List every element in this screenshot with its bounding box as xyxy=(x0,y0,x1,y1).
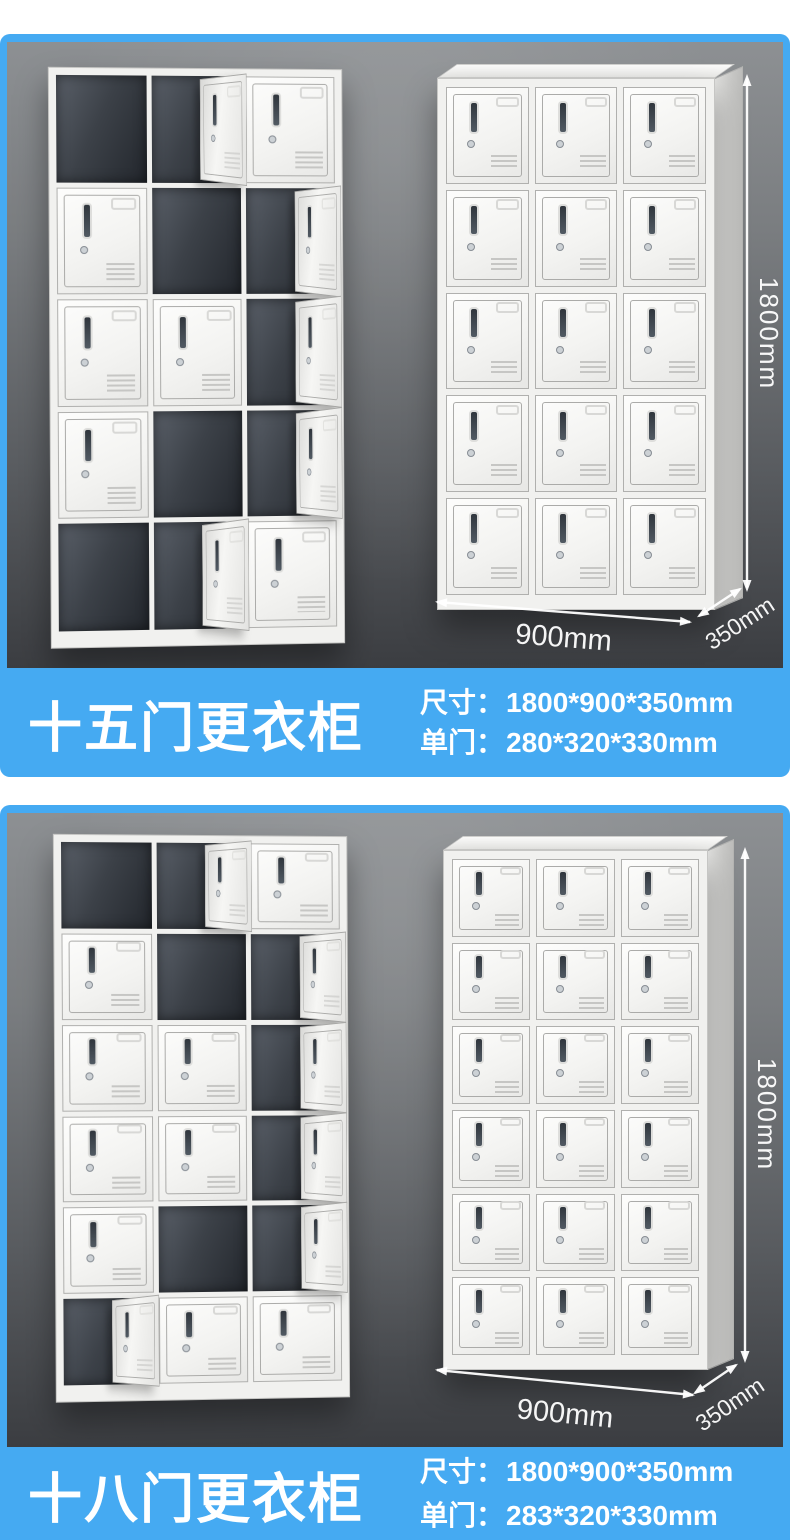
locker-door-cell xyxy=(621,1194,699,1272)
door-vents xyxy=(227,597,242,615)
door-card-slot xyxy=(327,1121,340,1132)
locker-door-cell xyxy=(535,190,618,287)
door-lock xyxy=(641,1153,649,1161)
door-card-slot xyxy=(302,531,326,543)
door-handle xyxy=(560,412,566,440)
product-banner-15: 十五门更衣柜 尺寸：1800*900*350mm 单门：280*320*330m… xyxy=(0,668,790,777)
door-card-slot xyxy=(584,1201,605,1209)
door-handle xyxy=(560,309,566,337)
locker-door-open xyxy=(295,296,342,408)
locker-door-cell xyxy=(621,1110,699,1188)
locker-15-front-view xyxy=(437,78,715,610)
locker-door xyxy=(157,1025,247,1111)
door-card-slot xyxy=(674,302,697,312)
door-lock xyxy=(180,1072,188,1080)
spec-size-value: 1800*900*350mm xyxy=(506,687,733,718)
locker-door-open xyxy=(205,840,252,932)
locker-door xyxy=(452,1026,530,1104)
door-card-slot xyxy=(584,1285,605,1293)
door-handle xyxy=(185,1039,191,1064)
door-vents xyxy=(495,1332,519,1344)
door-lock xyxy=(556,449,564,457)
door-handle xyxy=(645,1290,651,1313)
locker-door-cell xyxy=(623,395,706,492)
locker-open-compartment xyxy=(56,75,147,183)
door-handle xyxy=(85,429,91,461)
spec-door-value: 283*320*330mm xyxy=(506,1500,718,1531)
locker-door xyxy=(452,1194,530,1272)
door-card-slot xyxy=(585,405,608,415)
locker-door-cell xyxy=(157,1025,247,1111)
locker-18-front-view xyxy=(443,850,708,1370)
door-vents xyxy=(669,361,695,376)
door-lock xyxy=(176,358,184,366)
locker-door xyxy=(446,87,529,184)
door-vents xyxy=(669,464,695,479)
locker-door xyxy=(452,1110,530,1188)
door-vents xyxy=(579,914,603,926)
door-vents xyxy=(669,258,695,273)
locker-door xyxy=(158,1115,248,1201)
door-handle xyxy=(471,514,477,542)
locker-open-compartment xyxy=(151,76,241,183)
locker-door xyxy=(446,190,529,287)
locker-open-compartment xyxy=(61,842,152,929)
locker-door-cell xyxy=(62,1116,153,1203)
locker-18-front-grid xyxy=(443,850,708,1370)
door-lock xyxy=(306,357,310,364)
door-vents xyxy=(207,1085,235,1099)
height-dimension-label: 1800mm xyxy=(753,277,783,390)
locker-door xyxy=(446,395,529,492)
locker-door-cell xyxy=(251,843,340,929)
door-handle xyxy=(90,1131,96,1156)
locker-door-open xyxy=(300,1112,347,1203)
locker-door xyxy=(535,498,618,595)
door-card-slot xyxy=(227,85,241,98)
door-handle xyxy=(649,206,655,234)
door-lock xyxy=(81,358,89,366)
locker-door xyxy=(251,843,340,929)
locker-door-cell xyxy=(623,293,706,390)
locker-door-open xyxy=(299,931,346,1022)
door-handle xyxy=(649,103,655,131)
door-vents xyxy=(579,1332,603,1344)
locker-door-open xyxy=(295,407,342,519)
door-vents xyxy=(319,374,334,392)
door-card-slot xyxy=(500,1118,521,1126)
door-vents xyxy=(669,155,695,170)
locker-door xyxy=(623,190,706,287)
locker-door xyxy=(452,1277,530,1355)
door-handle xyxy=(560,103,566,131)
door-card-slot xyxy=(668,1118,689,1126)
spec-size-line: 尺寸：1800*900*350mm xyxy=(420,1450,733,1494)
door-vents xyxy=(113,1268,141,1282)
door-handle xyxy=(126,1313,129,1338)
locker-door xyxy=(452,943,530,1021)
locker-open-compartment xyxy=(63,1298,154,1386)
locker-door xyxy=(536,1026,614,1104)
door-handle xyxy=(85,317,91,349)
door-handle xyxy=(89,948,95,973)
door-lock xyxy=(641,1236,649,1244)
locker-door xyxy=(621,943,699,1021)
locker-door-cell xyxy=(536,943,614,1021)
door-card-slot xyxy=(326,941,339,951)
locker-door-cell xyxy=(621,859,699,937)
door-vents xyxy=(664,997,688,1009)
door-lock xyxy=(467,449,475,457)
locker-door-cell xyxy=(152,299,242,406)
door-card-slot xyxy=(207,309,231,321)
door-lock xyxy=(305,246,309,253)
locker-door-cell xyxy=(253,1295,342,1382)
door-handle xyxy=(471,412,477,440)
door-lock xyxy=(472,1069,480,1077)
door-vents xyxy=(325,1175,340,1190)
locker-door xyxy=(152,299,242,406)
spec-size-label: 尺寸： xyxy=(420,687,504,718)
locker-door-cell xyxy=(452,1277,530,1355)
locker-open-compartment xyxy=(246,188,335,294)
locker-door xyxy=(536,943,614,1021)
door-card-slot xyxy=(674,405,697,415)
door-card-slot xyxy=(584,1118,605,1126)
locker-door-cell xyxy=(623,87,706,184)
door-card-slot xyxy=(584,950,605,958)
locker-door-cell xyxy=(536,1194,614,1272)
door-card-slot xyxy=(140,1304,154,1315)
locker-door xyxy=(61,933,152,1019)
door-handle xyxy=(560,872,566,895)
locker-door-open xyxy=(301,1202,348,1293)
door-vents xyxy=(108,487,136,504)
door-vents xyxy=(325,1266,340,1281)
door-lock xyxy=(310,981,314,988)
locker-open-compartment xyxy=(157,934,247,1020)
locker-door-open xyxy=(200,73,248,185)
door-handle xyxy=(308,317,311,348)
locker-door-cell xyxy=(535,87,618,184)
locker-top-face xyxy=(437,64,735,78)
spec-size-line: 尺寸：1800*900*350mm xyxy=(420,683,733,723)
locker-door-cell xyxy=(621,1277,699,1355)
locker-door xyxy=(621,1026,699,1104)
locker-door-cell xyxy=(446,190,529,287)
locker-door-cell xyxy=(246,76,335,183)
door-handle xyxy=(313,1129,316,1154)
locker-top-face xyxy=(443,836,728,850)
locker-door-cell xyxy=(61,933,152,1019)
door-vents xyxy=(495,1081,519,1093)
door-card-slot xyxy=(500,1201,521,1209)
width-dimension-label: 900mm xyxy=(434,612,693,665)
locker-door xyxy=(535,293,618,390)
locker-door-cell xyxy=(536,1277,614,1355)
door-lock xyxy=(181,1163,189,1171)
locker-door-cell xyxy=(536,859,614,937)
door-lock xyxy=(641,985,649,993)
door-vents xyxy=(580,155,606,170)
door-vents xyxy=(302,1356,330,1370)
locker-door xyxy=(63,1207,154,1294)
door-vents xyxy=(664,1165,688,1177)
locker-door-cell xyxy=(158,1115,248,1201)
locker-door xyxy=(621,1277,699,1355)
locker-door xyxy=(621,1110,699,1188)
door-handle xyxy=(560,956,566,979)
door-lock xyxy=(85,981,93,989)
door-vents xyxy=(297,596,325,613)
door-card-slot xyxy=(584,1034,605,1042)
door-vents xyxy=(491,155,517,170)
spec-door-line: 单门：280*320*330mm xyxy=(420,723,733,763)
door-vents xyxy=(208,1357,236,1371)
door-card-slot xyxy=(327,1031,340,1042)
door-card-slot xyxy=(500,950,521,958)
door-card-slot xyxy=(213,1305,237,1315)
door-vents xyxy=(112,1085,140,1099)
door-lock xyxy=(472,1153,480,1161)
door-lock xyxy=(641,1320,649,1328)
door-handle xyxy=(645,1039,651,1062)
door-card-slot xyxy=(674,97,697,107)
locker-door xyxy=(536,859,614,937)
locker-door xyxy=(159,1297,249,1384)
door-handle xyxy=(649,309,655,337)
door-handle xyxy=(186,1312,192,1337)
spec-door-label: 单门： xyxy=(420,1500,504,1531)
locker-door xyxy=(623,87,706,184)
locker-door xyxy=(621,1194,699,1272)
door-handle xyxy=(312,949,315,974)
door-vents xyxy=(580,567,606,582)
locker-door xyxy=(452,859,530,937)
locker-door xyxy=(446,498,529,595)
door-vents xyxy=(664,914,688,926)
locker-door xyxy=(623,395,706,492)
door-lock xyxy=(213,580,217,587)
locker-door-cell xyxy=(623,498,706,595)
height-dimension-label: 1800mm xyxy=(751,1058,782,1171)
locker-door xyxy=(246,76,335,183)
locker-door-cell xyxy=(535,395,618,492)
door-vents xyxy=(579,997,603,1009)
locker-door-open xyxy=(202,519,250,631)
door-vents xyxy=(202,374,230,391)
door-handle xyxy=(476,1290,482,1313)
product-title: 十八门更衣柜 xyxy=(28,1454,364,1533)
door-handle xyxy=(84,205,90,237)
door-card-slot xyxy=(585,302,608,312)
door-vents xyxy=(491,464,517,479)
spec-door-line: 单门：283*320*330mm xyxy=(420,1494,733,1538)
door-vents xyxy=(324,1085,339,1100)
door-vents xyxy=(107,375,135,392)
locker-door-cell xyxy=(248,521,337,628)
locker-door-cell xyxy=(57,187,148,294)
door-vents xyxy=(491,361,517,376)
locker-15-front-grid xyxy=(437,78,715,610)
door-vents xyxy=(319,263,334,281)
locker-door-cell xyxy=(535,498,618,595)
door-vents xyxy=(491,258,517,273)
door-handle xyxy=(560,1290,566,1313)
locker-side-face xyxy=(715,66,743,610)
product-specs: 尺寸：1800*900*350mm 单门：283*320*330mm xyxy=(420,1450,733,1538)
door-card-slot xyxy=(674,508,697,518)
door-card-slot xyxy=(668,1285,689,1293)
door-handle xyxy=(180,317,186,348)
locker-door-cell xyxy=(58,411,149,519)
spec-size-label: 尺寸： xyxy=(420,1456,504,1487)
door-handle xyxy=(471,206,477,234)
door-handle xyxy=(91,1222,97,1247)
locker-door-open xyxy=(300,1022,347,1113)
locker-door-cell xyxy=(63,1207,154,1294)
door-handle xyxy=(560,514,566,542)
door-card-slot xyxy=(496,97,519,107)
door-card-slot xyxy=(117,1033,142,1042)
locker-open-compartment xyxy=(156,843,246,929)
locker-door xyxy=(57,299,148,407)
door-handle xyxy=(649,514,655,542)
door-card-slot xyxy=(668,1034,689,1042)
door-vents xyxy=(495,997,519,1009)
door-vents xyxy=(579,1165,603,1177)
door-card-slot xyxy=(322,418,335,431)
spec-door-label: 单门： xyxy=(420,727,504,758)
door-card-slot xyxy=(500,1034,521,1042)
door-handle xyxy=(476,1039,482,1062)
door-card-slot xyxy=(300,87,324,99)
door-vents xyxy=(491,567,517,582)
door-lock xyxy=(556,243,564,251)
locker-door-cell xyxy=(623,190,706,287)
product-banner-18: 十八门更衣柜 尺寸：1800*900*350mm 单门：283*320*330m… xyxy=(0,1447,790,1540)
locker-door xyxy=(446,293,529,390)
door-card-slot xyxy=(117,1124,142,1133)
door-handle xyxy=(560,206,566,234)
door-handle xyxy=(309,428,312,459)
locker-door xyxy=(248,521,337,628)
width-dimension-label: 900mm xyxy=(436,1386,694,1444)
locker-door-cell xyxy=(452,943,530,1021)
locker-product-page: 1800mm 900mm 350mm 十五门更衣柜 尺寸：1800*900*35… xyxy=(0,0,790,1540)
locker-door xyxy=(535,87,618,184)
locker-open-compartment xyxy=(152,187,242,294)
door-handle xyxy=(476,956,482,979)
locker-door-cell xyxy=(536,1110,614,1188)
door-card-slot xyxy=(585,199,608,209)
locker-door xyxy=(57,187,148,294)
door-vents xyxy=(580,258,606,273)
door-handle xyxy=(273,94,279,125)
door-handle xyxy=(645,956,651,979)
locker-open-compartment xyxy=(154,522,244,630)
door-handle xyxy=(185,1130,191,1155)
door-lock xyxy=(472,902,480,910)
door-vents xyxy=(664,1081,688,1093)
door-card-slot xyxy=(321,197,334,210)
door-card-slot xyxy=(496,405,519,415)
door-vents xyxy=(224,151,239,169)
door-lock xyxy=(556,1153,564,1161)
locker-open-compartment xyxy=(58,523,149,631)
door-vents xyxy=(300,904,328,917)
locker-open-compartment xyxy=(247,410,336,517)
door-vents xyxy=(111,994,139,1007)
door-handle xyxy=(313,1039,316,1064)
door-handle xyxy=(90,1039,96,1064)
locker-door-cell xyxy=(57,299,148,407)
door-card-slot xyxy=(496,508,519,518)
door-lock xyxy=(467,346,475,354)
door-lock xyxy=(307,468,311,475)
door-lock xyxy=(269,135,277,143)
locker-door-cell xyxy=(446,395,529,492)
door-handle xyxy=(645,1207,651,1230)
door-vents xyxy=(495,914,519,926)
locker-open-compartment xyxy=(247,299,336,406)
locker-open-compartment xyxy=(253,1205,342,1291)
door-card-slot xyxy=(229,530,243,543)
door-vents xyxy=(229,904,244,919)
door-card-slot xyxy=(113,422,138,434)
door-card-slot xyxy=(305,852,329,861)
section-18-door: 1800mm 900mm 350mm 十八门更衣柜 尺寸：1800*900*35… xyxy=(0,805,790,1540)
door-vents xyxy=(295,152,323,169)
door-card-slot xyxy=(668,1201,689,1209)
locker-open-compartment xyxy=(252,1115,341,1201)
door-lock xyxy=(641,1069,649,1077)
door-lock xyxy=(80,246,88,254)
door-handle xyxy=(314,1220,317,1245)
locker-door-cell xyxy=(452,1194,530,1272)
door-handle xyxy=(649,412,655,440)
door-handle xyxy=(560,1039,566,1062)
door-lock xyxy=(311,1162,315,1169)
door-vents xyxy=(579,1248,603,1260)
locker-door xyxy=(536,1110,614,1188)
door-handle xyxy=(645,872,651,895)
door-handle xyxy=(218,858,221,883)
door-lock xyxy=(472,1320,480,1328)
door-card-slot xyxy=(116,942,141,951)
locker-open-compartment xyxy=(153,410,243,518)
door-vents xyxy=(580,361,606,376)
door-handle xyxy=(275,539,281,570)
door-card-slot xyxy=(496,302,519,312)
door-handle xyxy=(476,1207,482,1230)
door-vents xyxy=(107,263,135,280)
photo-panel-15: 1800mm 900mm 350mm xyxy=(7,42,783,668)
locker-door xyxy=(621,859,699,937)
door-vents xyxy=(207,1176,235,1190)
door-handle xyxy=(278,858,284,883)
door-vents xyxy=(580,464,606,479)
door-lock xyxy=(85,1072,93,1080)
locker-door xyxy=(623,293,706,390)
door-handle xyxy=(280,1310,286,1335)
locker-door xyxy=(253,1295,342,1382)
locker-door-cell xyxy=(536,1026,614,1104)
door-card-slot xyxy=(307,1304,331,1314)
door-card-slot xyxy=(585,508,608,518)
door-card-slot xyxy=(232,850,246,860)
door-vents xyxy=(137,1359,153,1374)
